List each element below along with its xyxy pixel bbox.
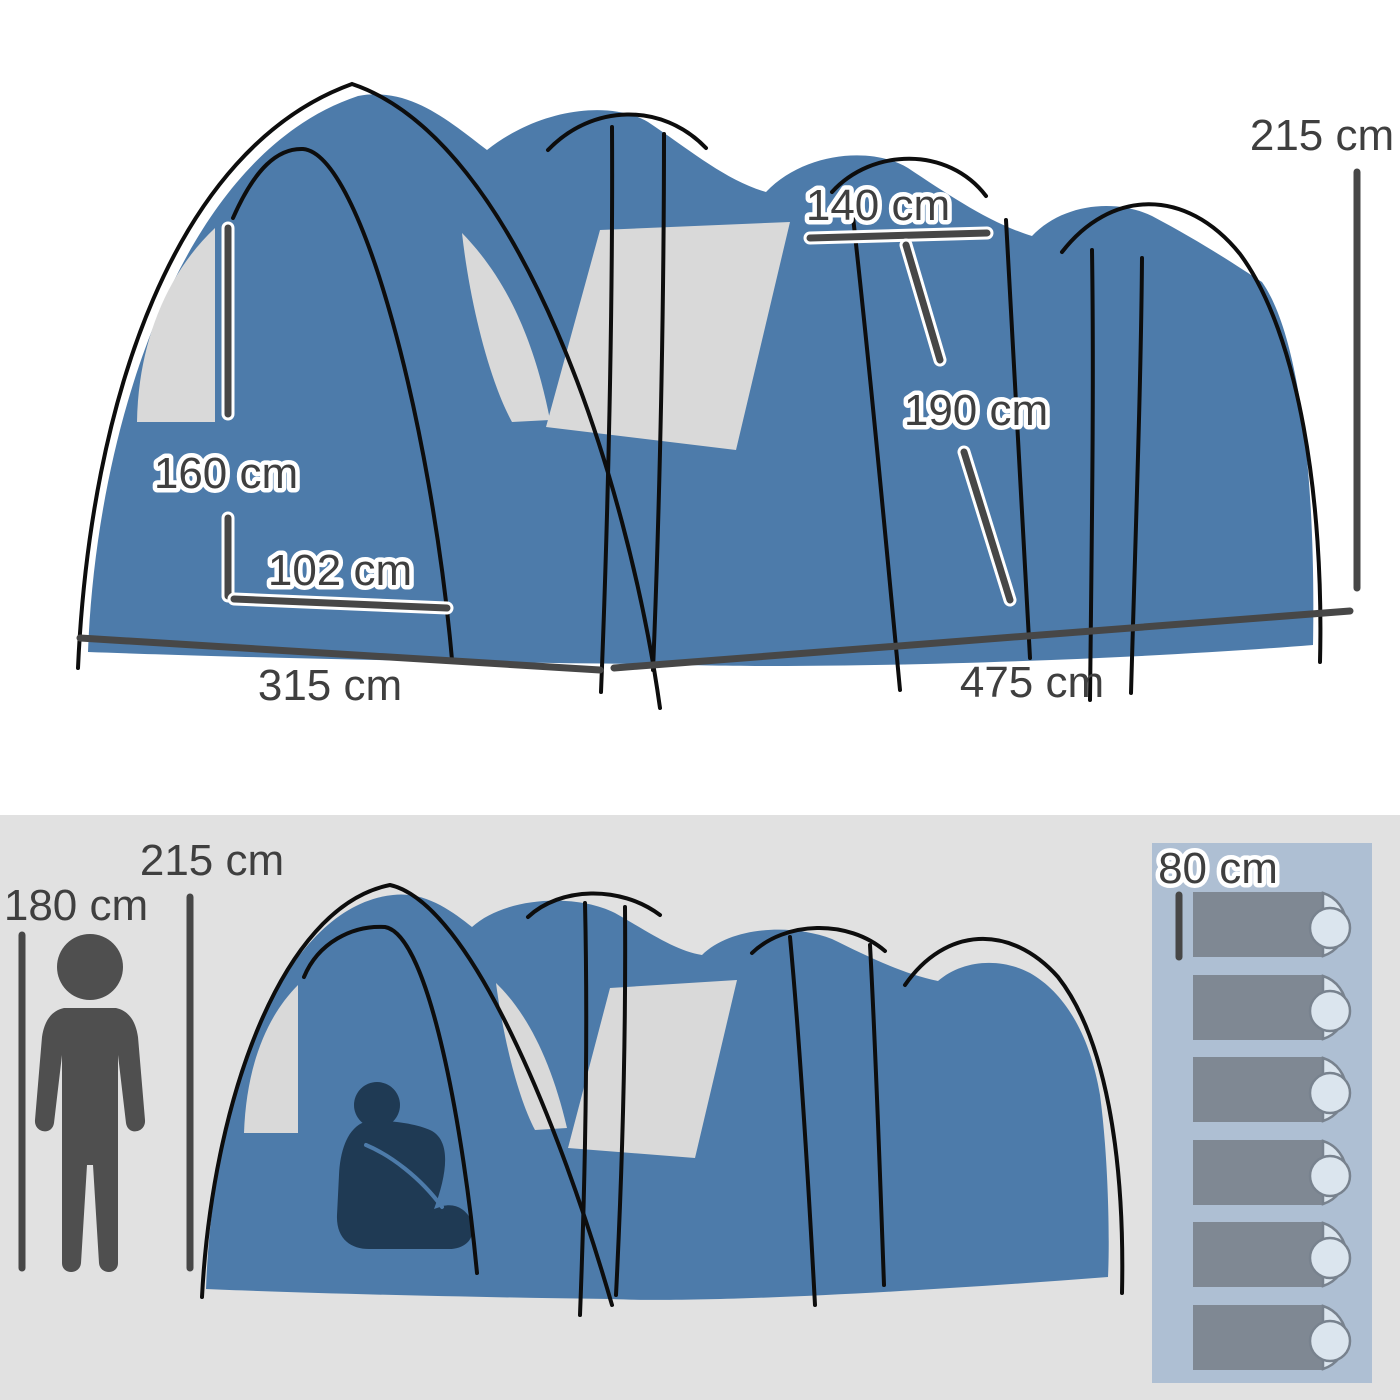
width-140-line bbox=[810, 233, 987, 238]
front-left-window bbox=[137, 228, 215, 422]
inner-width-label: 140 cm bbox=[806, 181, 950, 230]
sleeping-bag-icon bbox=[1193, 1140, 1350, 1205]
sleeping-bag-icon bbox=[1193, 1222, 1350, 1287]
scale-comparison-illustration: 180 cm 215 cm 80 cm bbox=[0, 815, 1400, 1400]
bag-width-label: 80 cm bbox=[1158, 844, 1278, 893]
person-height-label: 180 cm bbox=[4, 881, 148, 930]
exterior-dimensions-panel: 215 cm 140 cm 190 cm 160 cm 102 cm 315 c… bbox=[0, 0, 1400, 815]
sleeping-bag-icon bbox=[1193, 892, 1350, 957]
total-height-label: 215 cm bbox=[1250, 111, 1394, 160]
side-length-label: 475 cm bbox=[960, 658, 1104, 707]
sleeping-bag-icon bbox=[1193, 975, 1350, 1040]
capacity-panel bbox=[1152, 843, 1372, 1383]
standing-person-icon bbox=[35, 934, 145, 1272]
scale-comparison-panel: 180 cm 215 cm 80 cm bbox=[0, 815, 1400, 1400]
door-height-label: 160 cm bbox=[154, 449, 298, 498]
exterior-tent-illustration: 215 cm 140 cm 190 cm 160 cm 102 cm 315 c… bbox=[0, 0, 1400, 815]
inner-height-label: 190 cm bbox=[904, 386, 1048, 435]
tent-dimension-infographic: 215 cm 140 cm 190 cm 160 cm 102 cm 315 c… bbox=[0, 0, 1400, 1400]
sleeping-bag-icon bbox=[1193, 1057, 1350, 1122]
sleeping-bag-icon bbox=[1193, 1305, 1350, 1370]
tent-height-label: 215 cm bbox=[140, 836, 284, 885]
front-width-label: 315 cm bbox=[258, 661, 402, 710]
door-width-label: 102 cm bbox=[268, 546, 412, 595]
